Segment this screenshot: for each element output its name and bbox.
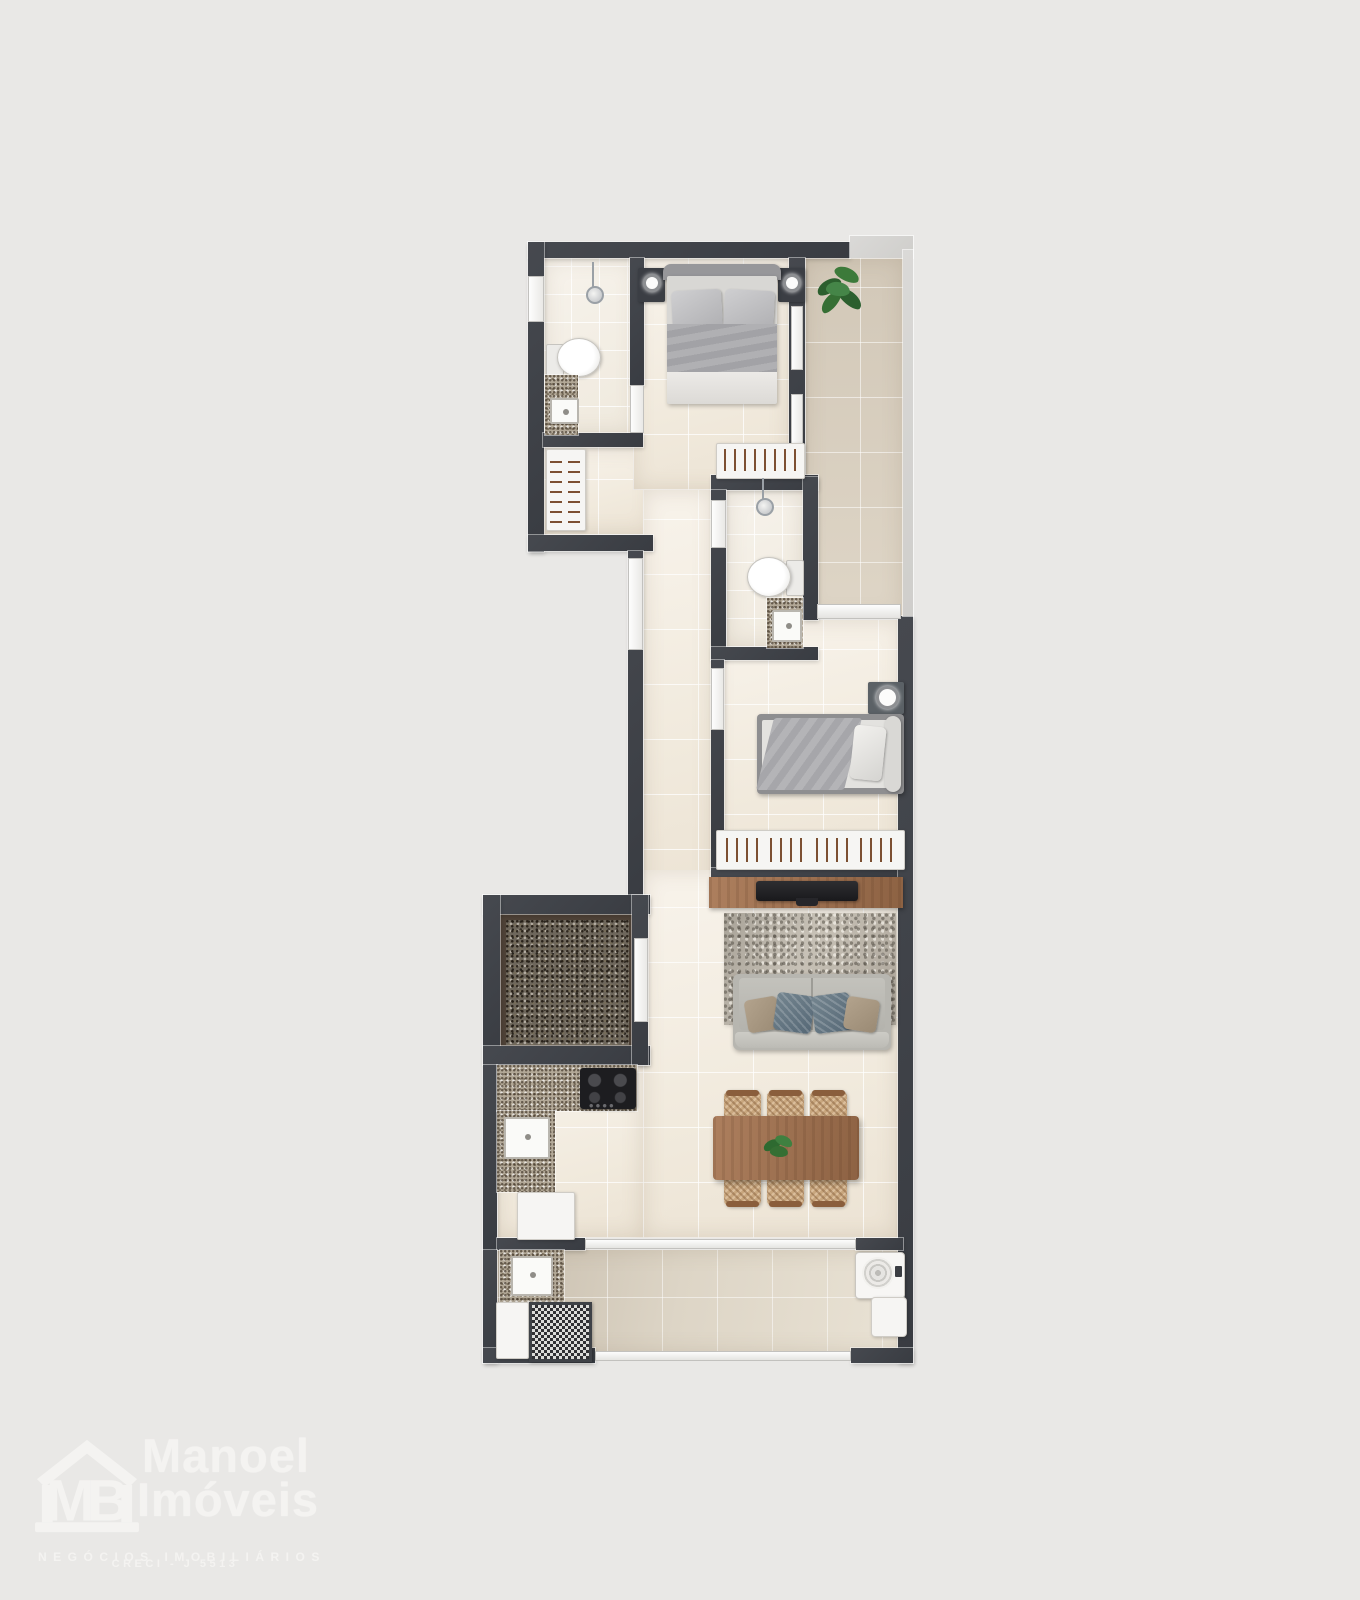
wall-hall-bottom <box>483 1046 650 1065</box>
bed-sheet <box>667 372 777 404</box>
chair-back <box>812 1090 845 1096</box>
bedroom-wardrobe-rail <box>764 449 796 471</box>
brand-name-line2: Imóveis <box>137 1478 319 1521</box>
bed-pillow <box>849 724 886 781</box>
toilet <box>557 338 601 377</box>
service-sink <box>511 1256 553 1296</box>
chair-back <box>769 1090 802 1096</box>
vanity-sink <box>550 398 579 424</box>
wall-kitchen-left <box>483 1065 497 1250</box>
tv-mount <box>796 898 818 906</box>
window-suite-bathroom <box>528 276 544 322</box>
service-appliance <box>871 1297 907 1337</box>
closet-wardrobe-rail <box>550 455 562 523</box>
entry-hall-floor <box>506 920 629 1045</box>
double-bed <box>663 264 781 406</box>
floorplan-canvas: MB Manoel Imóveis NEGÓCIOS IMOBILIÁRIOS … <box>0 0 1360 1600</box>
closet-wardrobe-rail <box>568 455 580 523</box>
chair-back <box>726 1201 759 1207</box>
glass-door-service <box>585 1239 856 1249</box>
bed-headboard <box>885 716 901 792</box>
nightstand-lamp <box>643 274 661 292</box>
table-plant <box>763 1132 795 1162</box>
sofa-pillow <box>843 996 881 1034</box>
door-second-bedroom <box>711 668 724 730</box>
bed-blanket <box>667 324 777 372</box>
vanity-sink <box>772 610 802 642</box>
pendant-light <box>586 286 604 304</box>
nightstand-lamp <box>876 686 899 709</box>
wardrobe-rail <box>860 838 894 862</box>
window-balcony-1 <box>791 306 803 370</box>
wall-service-divider-right <box>856 1238 903 1250</box>
sofa-front <box>735 1032 889 1048</box>
pendant-light <box>756 498 774 516</box>
wall-top <box>528 242 850 258</box>
wall-hall-top <box>483 895 650 914</box>
window-balcony-end <box>817 604 901 619</box>
service-door-leaf <box>496 1302 529 1359</box>
potted-plant <box>814 262 862 318</box>
wall-suite-bathroom-bottom <box>543 433 643 447</box>
wall-service-left <box>483 1250 497 1363</box>
brand-house-icon: MB <box>33 1434 141 1536</box>
soap-dish <box>895 1266 902 1277</box>
nightstand-lamp <box>783 274 801 292</box>
window-corridor <box>628 558 643 650</box>
chair-back <box>812 1201 845 1207</box>
chair-back <box>769 1201 802 1207</box>
cooktop <box>580 1068 636 1109</box>
door-entry-hall <box>634 938 648 1022</box>
pendant-cord <box>592 262 594 288</box>
laundry-tank-basin <box>862 1257 894 1289</box>
sofa-pillow <box>773 992 816 1035</box>
refrigerator <box>517 1192 575 1240</box>
single-bed <box>757 714 904 794</box>
brand-name-line1: Manoel <box>142 1434 310 1477</box>
washing-machine <box>529 1302 592 1362</box>
wall-social-bathroom-right <box>803 477 818 620</box>
brand-initials: MB <box>46 1468 127 1533</box>
bed-blanket <box>756 718 862 790</box>
wall-hall-left <box>483 895 500 1065</box>
pendant-cord <box>762 478 764 500</box>
floor-hallway <box>643 490 713 905</box>
sofa <box>733 974 891 1050</box>
kitchen-sink <box>504 1117 550 1159</box>
wardrobe-rail <box>816 838 850 862</box>
door-social-bathroom <box>711 500 726 548</box>
brand-registration: CRECI - J 5513 <box>40 1558 310 1570</box>
wall-closet-bottom <box>528 535 653 551</box>
wall-bottom-right <box>851 1348 913 1363</box>
bedroom-wardrobe-rail <box>724 449 756 471</box>
door-suite-bathroom <box>630 385 644 433</box>
balcony-glass-railing <box>903 250 913 616</box>
chair-back <box>726 1090 759 1096</box>
glass-window-bottom <box>595 1351 851 1361</box>
toilet <box>747 557 791 597</box>
wall-social-bathroom-bottom <box>711 647 818 660</box>
wardrobe-rail <box>726 838 760 862</box>
wardrobe-rail <box>770 838 804 862</box>
